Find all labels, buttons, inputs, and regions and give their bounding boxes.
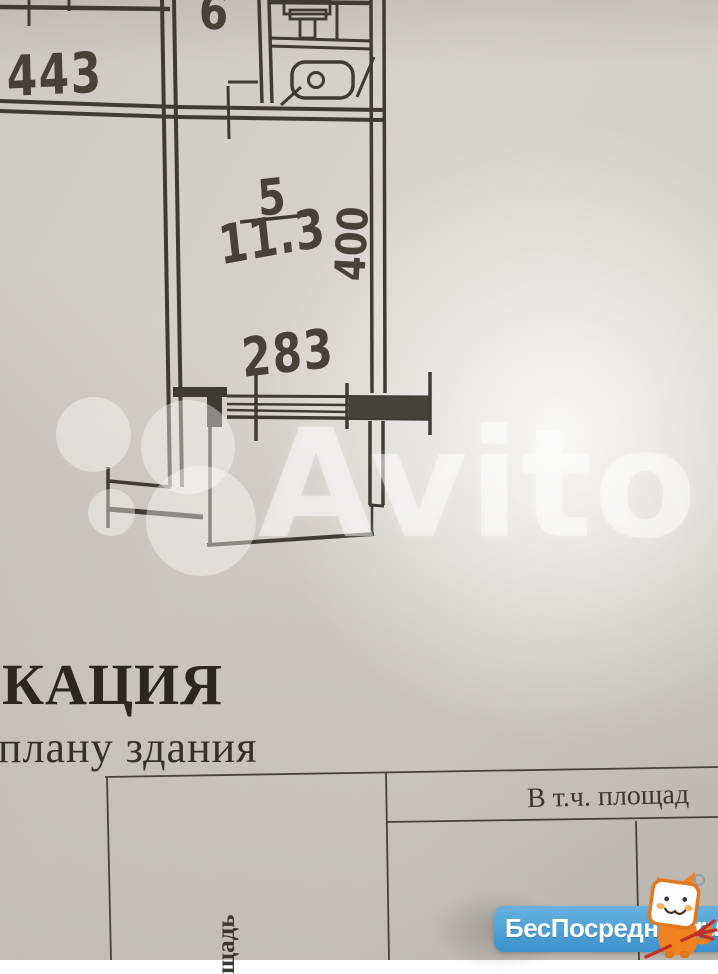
bathtub-fixture: [292, 62, 353, 98]
toilet-fixture: [284, 1, 330, 38]
dimension-283-label: 283: [240, 322, 336, 386]
avito-dot: [56, 397, 131, 472]
avito-watermark-text: Avito: [258, 410, 698, 560]
plan-subtitle-fragment: плану здания: [0, 726, 257, 770]
cat-mascot-icon: [638, 870, 718, 960]
explication-title-fragment: КАЦИЯ: [2, 656, 223, 714]
dimension-400-label: 400: [329, 212, 375, 282]
avito-dot: [88, 489, 135, 536]
room-label-6: 6: [198, 0, 230, 38]
room-label-443: 443: [6, 46, 103, 106]
table-header-including-area: В т.ч. площад: [527, 781, 690, 813]
table-header-area-vertical: щадь: [214, 904, 239, 974]
avito-dot: [146, 466, 256, 576]
